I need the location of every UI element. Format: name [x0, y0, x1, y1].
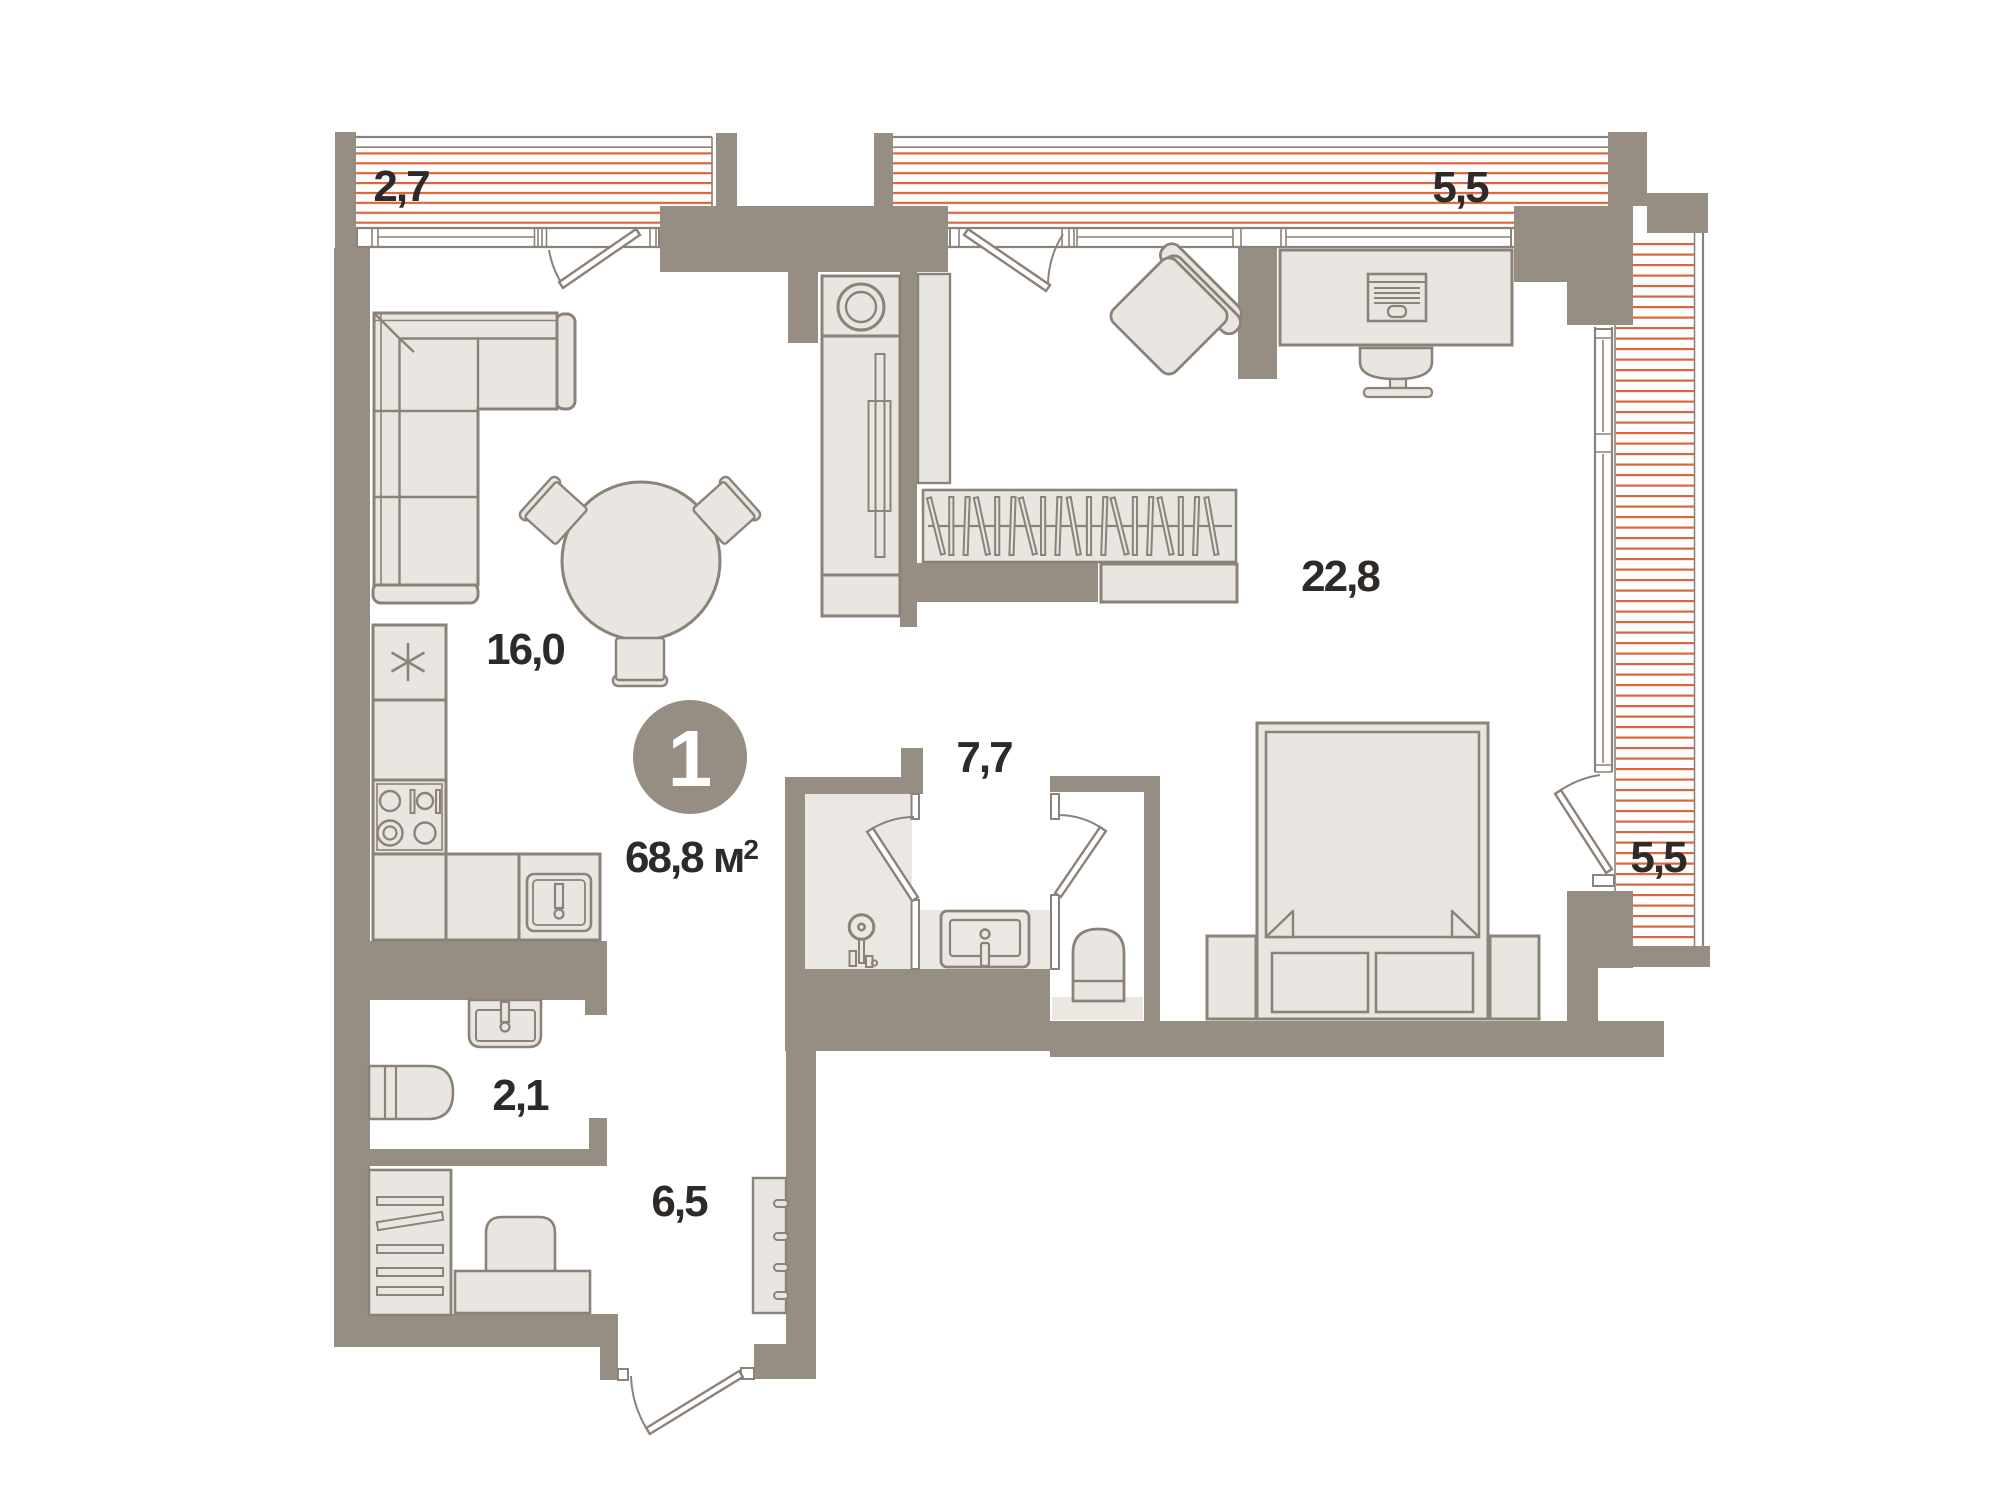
svg-text:22,8: 22,8 — [1301, 552, 1380, 601]
svg-text:2,7: 2,7 — [373, 162, 429, 211]
svg-text:5,5: 5,5 — [1432, 163, 1489, 212]
svg-text:68,8 м2: 68,8 м2 — [625, 833, 758, 882]
svg-text:2,1: 2,1 — [492, 1071, 549, 1120]
svg-text:16,0: 16,0 — [486, 625, 564, 674]
svg-text:6,5: 6,5 — [651, 1177, 708, 1226]
svg-text:1: 1 — [668, 714, 713, 803]
svg-text:7,7: 7,7 — [956, 733, 1012, 782]
svg-text:5,5: 5,5 — [1630, 833, 1687, 882]
